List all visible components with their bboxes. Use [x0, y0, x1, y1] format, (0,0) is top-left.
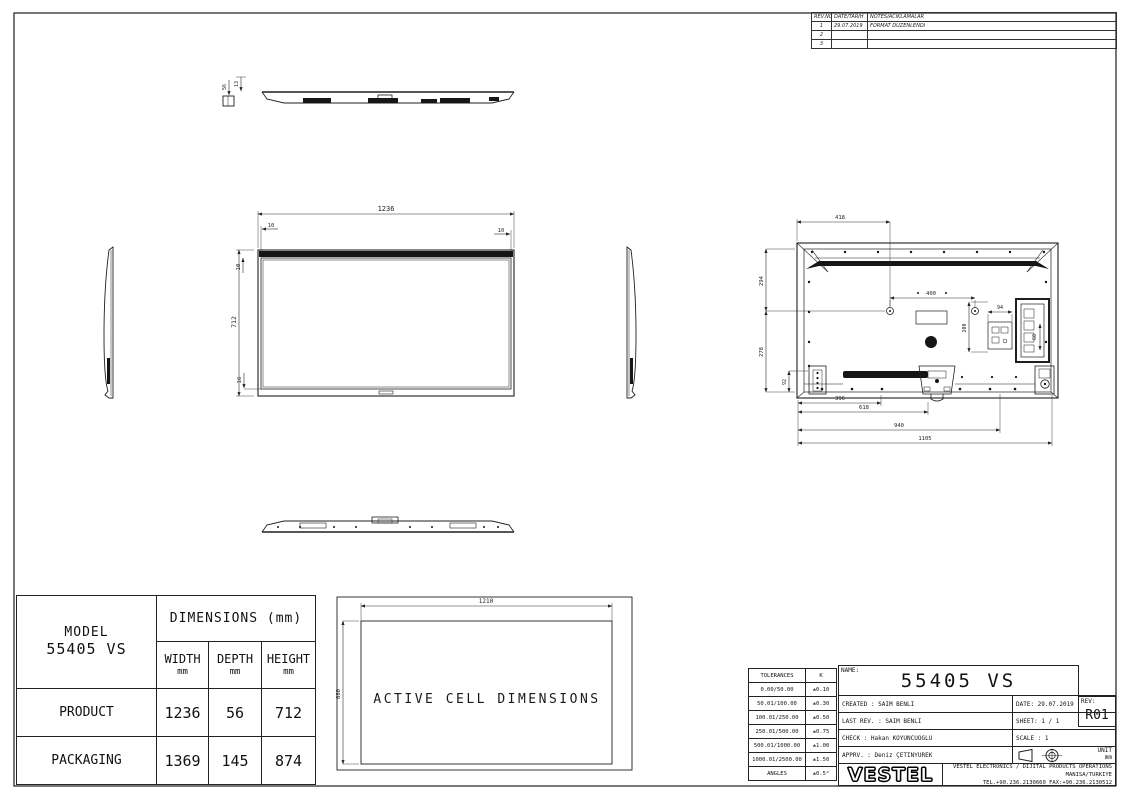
apprv-cell: APPRV. : Deniz ÇETINYUREK — [838, 746, 1013, 764]
dim-label-94: 94 — [997, 305, 1003, 311]
height-unit: mm — [283, 667, 294, 677]
drawing-sheet: 13 56 1236 10 10 10 — [0, 0, 1130, 799]
tolerance-range: 50.01/100.00 — [748, 696, 806, 711]
depth-unit: mm — [230, 667, 241, 677]
model-cell: MODEL 55405 VS — [16, 595, 157, 689]
product-row-label: PRODUCT — [16, 688, 157, 737]
revision-date — [832, 31, 868, 40]
title-block: NAME: 55405 VS REV: R01 CREATED : SAIM B… — [838, 665, 1116, 786]
tolerances-k-label: K — [805, 668, 837, 683]
dim-label-92: 92 — [782, 379, 788, 385]
revision-header-notes: NOTES/ACIKLAMALAR — [868, 13, 1117, 22]
company-line1: VESTEL ELECTRONICS / DIJITAL PRODUCTS OP… — [943, 763, 1112, 779]
tolerance-value: ±0.75 — [805, 724, 837, 739]
height-label: HEIGHT — [267, 653, 310, 667]
active-cell-view: 1210 680 ACTIVE CELL DIMENSIONS — [336, 597, 632, 770]
revision-header-date: DATE/TARIH — [832, 13, 868, 22]
vestel-logo: VESTEL — [838, 763, 943, 786]
bottom-view — [262, 517, 514, 532]
left-side-view — [104, 247, 113, 398]
front-view: 1236 10 10 10 712 16 — [230, 205, 514, 396]
revision-row: 3 — [812, 40, 1117, 49]
dim-label-400: 400 — [926, 291, 936, 297]
product-depth: 56 — [208, 688, 262, 737]
tolerance-range: 250.01/500.00 — [748, 724, 806, 739]
dim-label-618: 618 — [859, 405, 869, 411]
top-view: 13 56 — [222, 77, 514, 106]
dim-label-1236: 1236 — [378, 205, 395, 213]
tolerance-value: ±1.50 — [805, 752, 837, 767]
tolerance-value: ±0.5° — [805, 766, 837, 781]
dim-label-10-left: 10 — [268, 223, 275, 229]
model-label: MODEL — [64, 626, 108, 641]
revision-table: REV.NO DATE/TARIH NOTES/ACIKLAMALAR 1 29… — [811, 12, 1117, 49]
company-cell: VESTEL ELECTRONICS / DIJITAL PRODUCTS OP… — [942, 763, 1116, 786]
dim-label-396: 396 — [835, 396, 845, 402]
rear-view: 418 400 294 278 92 94 — [759, 215, 1058, 446]
dim-label-1210: 1210 — [479, 598, 494, 605]
date-cell: DATE: 29.07.2019 — [1012, 695, 1116, 713]
dim-label-294: 294 — [759, 275, 765, 286]
name-label: NAME: — [841, 667, 859, 674]
dim-label-418: 418 — [835, 215, 845, 221]
unit-value: mm — [1105, 755, 1112, 762]
packaging-depth: 145 — [208, 736, 262, 785]
revision-header-no: REV.NO — [812, 13, 832, 22]
drawing-name: 55405 VS — [901, 670, 1017, 692]
dim-label-680: 680 — [336, 689, 342, 699]
vestel-logo-text: VESTEL — [848, 764, 933, 786]
revision-note: FORMAT DUZENLENDI — [868, 22, 1117, 31]
revision-no: 1 — [812, 22, 832, 31]
dim-label-10-right: 10 — [498, 228, 505, 234]
dim-label-712: 712 — [230, 316, 238, 328]
width-header: WIDTH mm — [156, 641, 209, 689]
tolerance-range: ANGLES — [748, 766, 806, 781]
revision-row: 2 — [812, 31, 1117, 40]
revision-date — [832, 40, 868, 49]
tolerance-range: 0.00/50.00 — [748, 682, 806, 697]
tolerance-value: ±0.50 — [805, 710, 837, 725]
tolerance-value: ±1.00 — [805, 738, 837, 753]
company-line2: TEL.+90.236.2130660 FAX:+90.236.2130512 — [943, 779, 1112, 787]
packaging-row-label: PACKAGING — [16, 736, 157, 785]
check-cell: CHECK : Hakan KOYUNCUOGLU — [838, 729, 1013, 747]
tolerances-title: TOLERANCES — [748, 668, 806, 683]
tolerance-value: ±0.10 — [805, 682, 837, 697]
dim-label-top-56: 56 — [222, 84, 228, 90]
projection-unit-cell: UNIT mm — [1012, 746, 1116, 764]
dim-label-278: 278 — [759, 347, 765, 357]
right-side-view — [627, 247, 636, 398]
dim-label-16: 16 — [237, 377, 243, 384]
product-width: 1236 — [156, 688, 209, 737]
tolerance-value: ±0.30 — [805, 696, 837, 711]
dim-label-60: 60 — [1032, 334, 1038, 340]
depth-label: DEPTH — [217, 653, 253, 667]
height-header: HEIGHT mm — [261, 641, 316, 689]
scale-cell: SCALE : 1 — [1012, 729, 1116, 747]
width-label: WIDTH — [164, 653, 200, 667]
active-cell-label: ACTIVE CELL DIMENSIONS — [373, 692, 600, 707]
dimensions-header: DIMENSIONS (mm) — [156, 595, 316, 642]
tolerances-table: TOLERANCES K 0.00/50.00 ±0.10 50.01/100.… — [748, 668, 837, 780]
revision-no: 2 — [812, 31, 832, 40]
last-rev-cell: LAST REV. : SAIM BENLI — [838, 712, 1013, 730]
projection-symbol-icon — [1016, 748, 1072, 763]
depth-header: DEPTH mm — [208, 641, 262, 689]
revision-note — [868, 31, 1117, 40]
revision-no: 3 — [812, 40, 832, 49]
revision-date: 29.07.2019 — [832, 22, 868, 31]
tolerance-range: 500.01/1000.00 — [748, 738, 806, 753]
dim-label-200: 200 — [962, 323, 968, 332]
name-cell: NAME: 55405 VS — [838, 665, 1079, 696]
created-cell: CREATED : SAIM BENLI — [838, 695, 1013, 713]
dim-label-1105: 1105 — [918, 436, 931, 442]
dimensions-table: MODEL 55405 VS DIMENSIONS (mm) WIDTH mm … — [16, 595, 316, 785]
revision-row: 1 29.07.2019 FORMAT DUZENLENDI — [812, 22, 1117, 31]
dim-label-top-13: 13 — [234, 81, 240, 87]
packaging-height: 874 — [261, 736, 316, 785]
width-unit: mm — [177, 667, 188, 677]
tolerance-range: 100.01/250.00 — [748, 710, 806, 725]
model-value: 55405 VS — [46, 641, 126, 658]
packaging-width: 1369 — [156, 736, 209, 785]
product-height: 712 — [261, 688, 316, 737]
dim-label-940: 940 — [894, 423, 904, 429]
sheet-cell: SHEET: 1 / 1 — [1012, 712, 1116, 730]
revision-note — [868, 40, 1117, 49]
tolerance-range: 1000.01/2500.00 — [748, 752, 806, 767]
